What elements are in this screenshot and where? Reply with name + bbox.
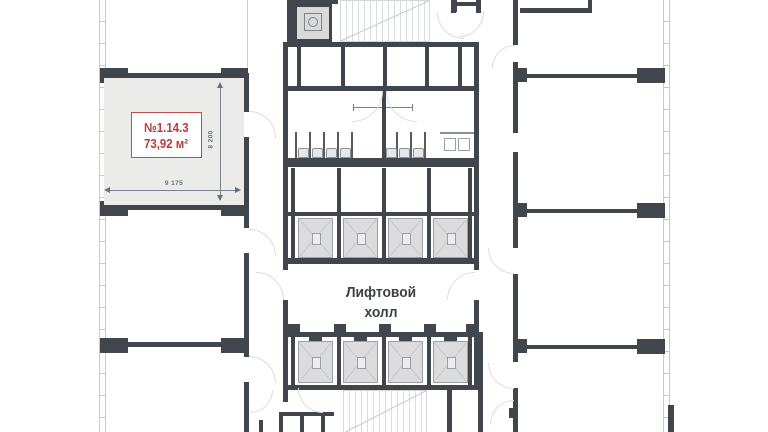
wall (291, 337, 295, 387)
elevator-car (343, 341, 378, 383)
column (637, 203, 665, 218)
door-swing-icon (256, 272, 284, 300)
door-swing-icon (250, 390, 273, 413)
column (513, 203, 527, 217)
wall (341, 47, 345, 86)
toilet-icon (386, 148, 397, 158)
elevator-hall-label-line1: Лифтовой (326, 284, 436, 302)
door-swing-icon (490, 400, 514, 424)
wall (520, 8, 592, 13)
wall (468, 168, 472, 260)
door-swing-icon (386, 91, 417, 122)
elevator-hall-label-line2: холл (326, 304, 436, 322)
column (513, 68, 527, 82)
wall (383, 47, 387, 86)
wall (513, 152, 518, 248)
elevator-cabin-icon (402, 357, 411, 369)
elevator-cabin-icon (357, 357, 366, 369)
wall (588, 0, 592, 12)
elevator-car (388, 218, 423, 258)
floor-plan: 8 200 9 175 №1.14.3 73,92 м² Лифтовой хо… (0, 0, 768, 432)
wall (283, 212, 479, 216)
elevator-cabin-icon (447, 233, 456, 245)
wall (334, 324, 346, 332)
unit-label[interactable]: №1.14.3 73,92 м² (131, 112, 202, 158)
door-swing-icon (447, 272, 475, 300)
door-swing-icon (352, 91, 383, 122)
wall (478, 332, 483, 432)
door-swing-icon (488, 248, 514, 274)
wc-stall-partition (295, 132, 297, 158)
wall (453, 0, 457, 12)
door-swing-icon (249, 229, 276, 256)
wall (518, 209, 638, 213)
door-swing-icon (459, 12, 484, 37)
wall (288, 324, 300, 332)
wall (300, 412, 304, 432)
dimension-arrow-down-icon (217, 195, 223, 201)
column (221, 338, 248, 353)
service-shaft (294, 4, 332, 42)
vanity-counter (440, 132, 474, 134)
column (637, 68, 665, 83)
door-swing-icon (249, 356, 276, 383)
elevator-cabin-icon (402, 233, 411, 245)
wall (513, 0, 518, 45)
wall (321, 412, 325, 432)
wc-stall-partition (309, 132, 311, 158)
column (513, 339, 527, 353)
elevator-cabin-icon (312, 233, 321, 245)
elevator-car (298, 218, 333, 258)
toilet-icon (399, 148, 410, 158)
wall (427, 168, 431, 260)
wall (518, 345, 638, 349)
toilet-icon (326, 148, 337, 158)
toilet-icon (340, 148, 351, 158)
elevator-car (298, 341, 333, 383)
wall (424, 324, 436, 332)
wc-stall-partition (337, 132, 339, 158)
dimension-height-label: 8 200 (208, 127, 215, 153)
toilet-icon (312, 148, 323, 158)
wall (379, 324, 391, 332)
elevator-cabin-icon (357, 233, 366, 245)
wc-stall-partition (351, 132, 353, 158)
boundary-line (247, 0, 248, 73)
elevator-car (343, 218, 378, 258)
staircase-icon (343, 390, 427, 432)
wall (382, 168, 386, 260)
toilet-icon (413, 148, 424, 158)
door-swing-icon (492, 45, 515, 68)
wall (287, 0, 294, 44)
wall (382, 337, 386, 387)
wall (282, 412, 334, 416)
staircase-icon (340, 0, 430, 42)
wall (474, 42, 479, 270)
wall (279, 412, 283, 432)
elevator-cabin-icon (312, 357, 321, 369)
wall (291, 168, 295, 260)
wc-stall-partition (410, 132, 412, 158)
wall (668, 405, 674, 432)
column (100, 338, 128, 353)
dimension-arrow-right-icon (235, 187, 241, 193)
door-swing-icon (298, 388, 323, 413)
wall (244, 382, 249, 432)
wall (466, 324, 478, 332)
wall (337, 337, 341, 387)
wall (297, 47, 301, 86)
wc-stall-partition (424, 132, 426, 158)
dimension-line-horizontal (107, 190, 239, 191)
facade-line-left (99, 0, 106, 432)
sink-icon (444, 138, 456, 151)
elevator-car (433, 218, 468, 258)
toilet-icon (298, 148, 309, 158)
wc-stall-partition (323, 132, 325, 158)
column (637, 339, 665, 354)
wall (259, 420, 263, 432)
shaft-symbol-circle-icon (308, 17, 318, 27)
dimension-line-vertical (220, 84, 221, 200)
unit-area: 73,92 м² (144, 136, 188, 151)
wall (294, 0, 338, 4)
dimension-width-label: 9 175 (144, 180, 204, 187)
wall (283, 390, 288, 402)
wall (447, 390, 452, 432)
door-swing-icon (488, 363, 514, 389)
door-swing-icon (249, 111, 276, 138)
wall (458, 47, 462, 86)
wall (283, 158, 479, 167)
dimension-arrow-left-icon (104, 187, 110, 193)
wall (518, 74, 638, 78)
elevator-cabin-icon (447, 357, 456, 369)
elevator-car (388, 341, 423, 383)
wall (468, 337, 472, 387)
wall (283, 300, 288, 390)
elevator-car (433, 341, 468, 383)
wall (283, 258, 479, 264)
unit-number: №1.14.3 (144, 120, 189, 135)
wall (283, 42, 479, 47)
wall (427, 337, 431, 387)
wall (337, 168, 341, 260)
sink-icon (458, 138, 470, 151)
wall (283, 42, 288, 270)
wall (425, 47, 429, 86)
dimension-arrow-up-icon (217, 82, 223, 88)
